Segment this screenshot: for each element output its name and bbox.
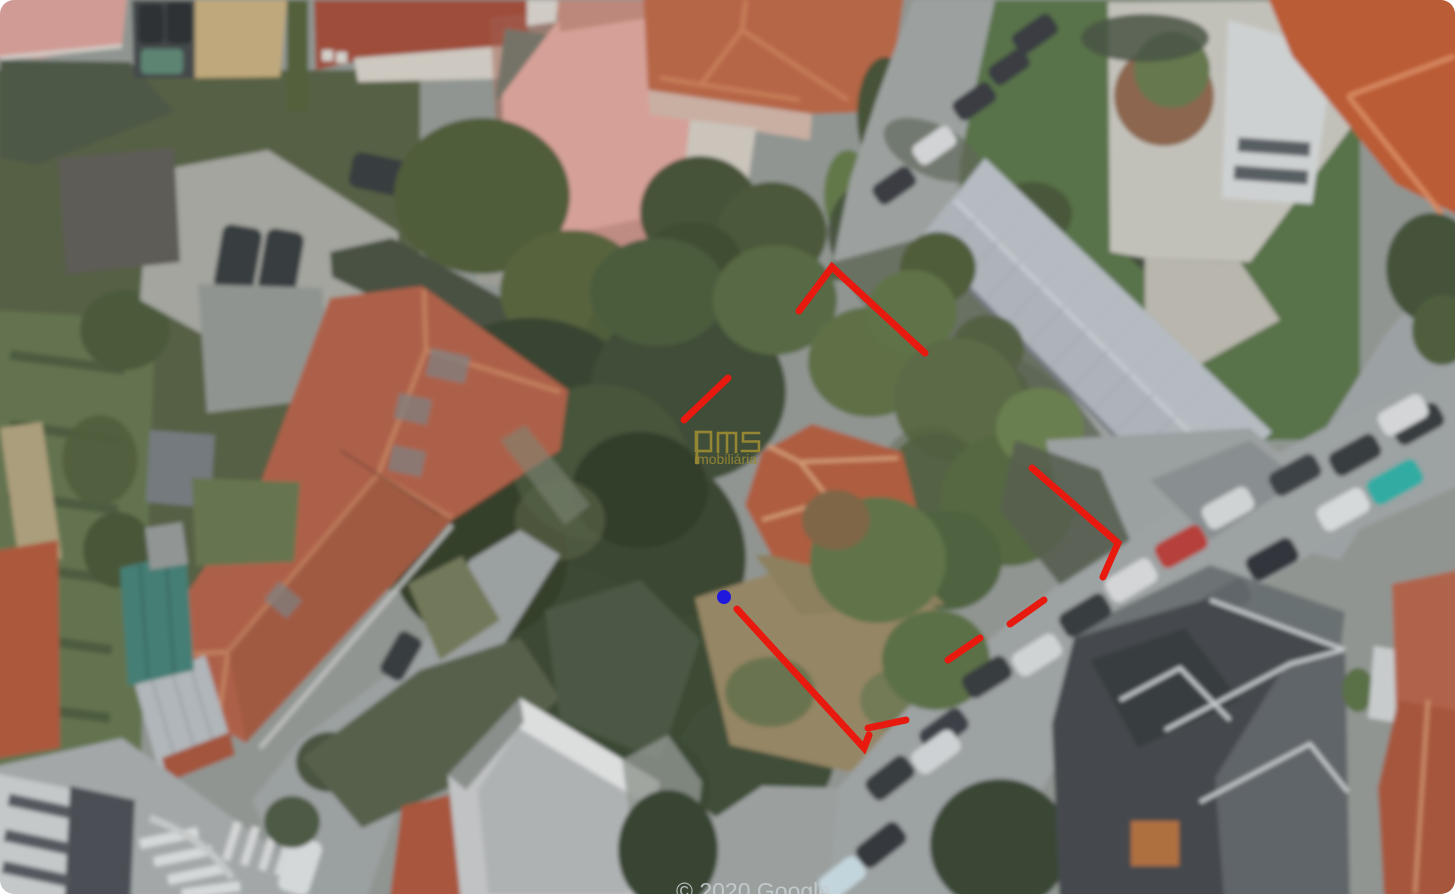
svg-text:© 2020 Google: © 2020 Google [676, 878, 831, 894]
svg-text:imobiliária: imobiliária [694, 451, 757, 467]
